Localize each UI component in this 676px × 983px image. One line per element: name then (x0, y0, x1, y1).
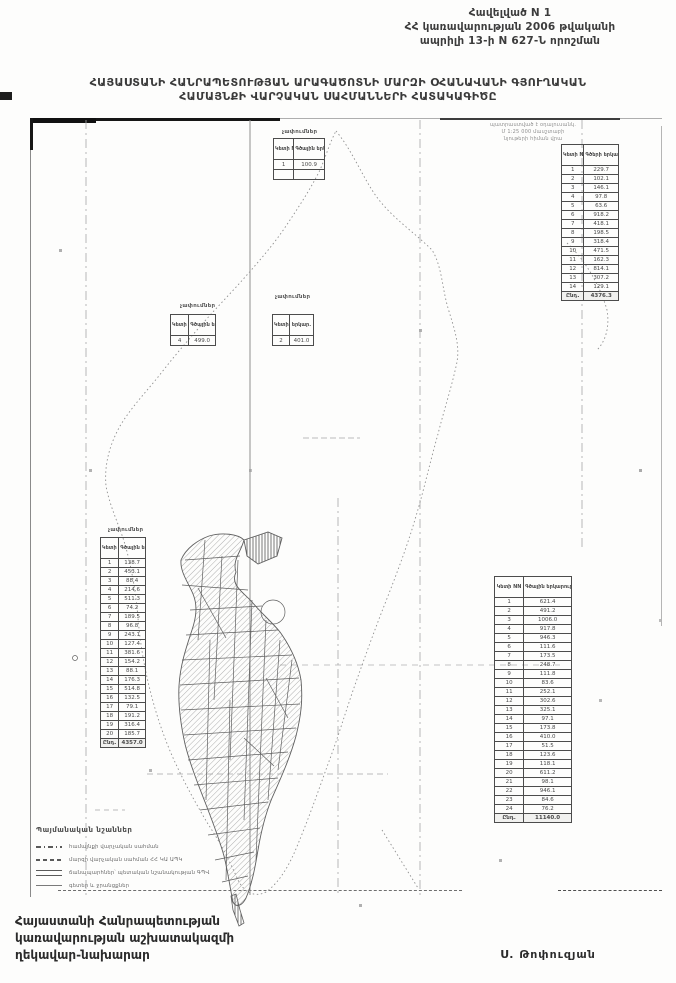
legend-item: ճանապարհներ՝ պետական նշանակության ԳՊՎ (36, 866, 236, 879)
legend-item-label: գետեր և ջրանցքներ (69, 883, 129, 889)
appendix-line: ապրիլի 13-ի N 627-Ն որոշման (350, 34, 670, 48)
measurement-table-c: Կետի NNԳծային երկար.4499.0 (170, 314, 216, 346)
scan-speckles (0, 0, 1, 1)
stamp-line: պատրաստված է օդալուսանկ. (468, 122, 598, 129)
stamp-line: նյութերի հիման վրա (468, 136, 598, 143)
legend-item-label: ճանապարհներ՝ պետական նշանակության ԳՊՎ (69, 870, 210, 876)
point-length-table-top-right: Կետի NNԳծերի երկարութ. (մ)1229.72102.131… (561, 144, 619, 301)
map-sheet: պատրաստված է օդալուսանկ. Մ 1:25 000 մասշ… (30, 118, 662, 897)
scan-artifact (0, 92, 12, 100)
legend-item: մարզի վարչական սահման ՀՀ ԿԱ ԱՊԿ (36, 853, 236, 866)
table-e-label: չափումներ (108, 527, 143, 533)
legend-item-label: մարզի վարչական սահման ՀՀ ԿԱ ԱՊԿ (69, 857, 182, 863)
scanned-map-page: { "page": { "appendix": [ "Հավելված N 1"… (0, 0, 676, 983)
issuing-authority-block: Հայաստանի Հանրապետության կառավարության ա… (15, 913, 234, 964)
marz-boundary-line-icon (36, 859, 62, 861)
road-line-icon (36, 870, 62, 876)
point-length-table-left: Կետի NNԳծային երկար. (մ)1138.72453.1388.… (100, 537, 146, 748)
legend-title: Պայմանական նշաններ (36, 826, 236, 834)
table-d-label: չափումներ (275, 294, 310, 300)
legend-item: համայնքի վարչական սահման (36, 840, 236, 853)
title-line: ՀԱՄԱՅՆՔԻ ՎԱՐՉԱԿԱՆ ՍԱՀՄԱՆՆԵՐԻ ՀԱՏԱԿԱԳԻԾԸ (20, 90, 656, 104)
table-a-label: չափումներ (282, 129, 317, 135)
measurement-table-a: Կետի NNԳծային երկար.1100.9 (273, 138, 325, 180)
appendix-line: Հավելված N 1 (350, 6, 670, 20)
point-length-table-right: Կետի NNԳծային երկարութ. (մետր)1621.42491… (494, 576, 572, 823)
survey-stamp-note: պատրաստված է օդալուսանկ. Մ 1:25 000 մասշ… (468, 122, 598, 143)
community-boundary-line-icon (36, 846, 62, 848)
authority-line: ղեկավար-նախարար (15, 947, 234, 964)
appendix-reference: Հավելված N 1 ՀՀ կառավարության 2006 թվակա… (350, 6, 670, 48)
authority-line: կառավարության աշխատակազմի (15, 930, 234, 947)
signature-name: Ս. Թոփուզյան (430, 948, 666, 961)
authority-line: Հայաստանի Հանրապետության (15, 913, 234, 930)
river-line-icon (36, 885, 62, 886)
page-title: ՀԱՅԱՍՏԱՆԻ ՀԱՆՐԱՊԵՏՈՒԹՅԱՆ ԱՐԱԳԱԾՈՏՆԻ ՄԱՐԶ… (20, 76, 656, 104)
stamp-line: Մ 1:25 000 մասշտաբի (468, 129, 598, 136)
table-c-label: չափումներ (180, 303, 215, 309)
measurement-table-d: Կետի Nերկար.2401.0 (272, 314, 314, 346)
legend-item-label: համայնքի վարչական սահման (69, 844, 159, 850)
title-line: ՀԱՅԱՍՏԱՆԻ ՀԱՆՐԱՊԵՏՈՒԹՅԱՆ ԱՐԱԳԱԾՈՏՆԻ ՄԱՐԶ… (20, 76, 656, 90)
appendix-line: ՀՀ կառավարության 2006 թվականի (350, 20, 670, 34)
legend-item: գետեր և ջրանցքներ (36, 879, 236, 892)
legend: Պայմանական նշաններ համայնքի վարչական սահ… (36, 826, 236, 892)
